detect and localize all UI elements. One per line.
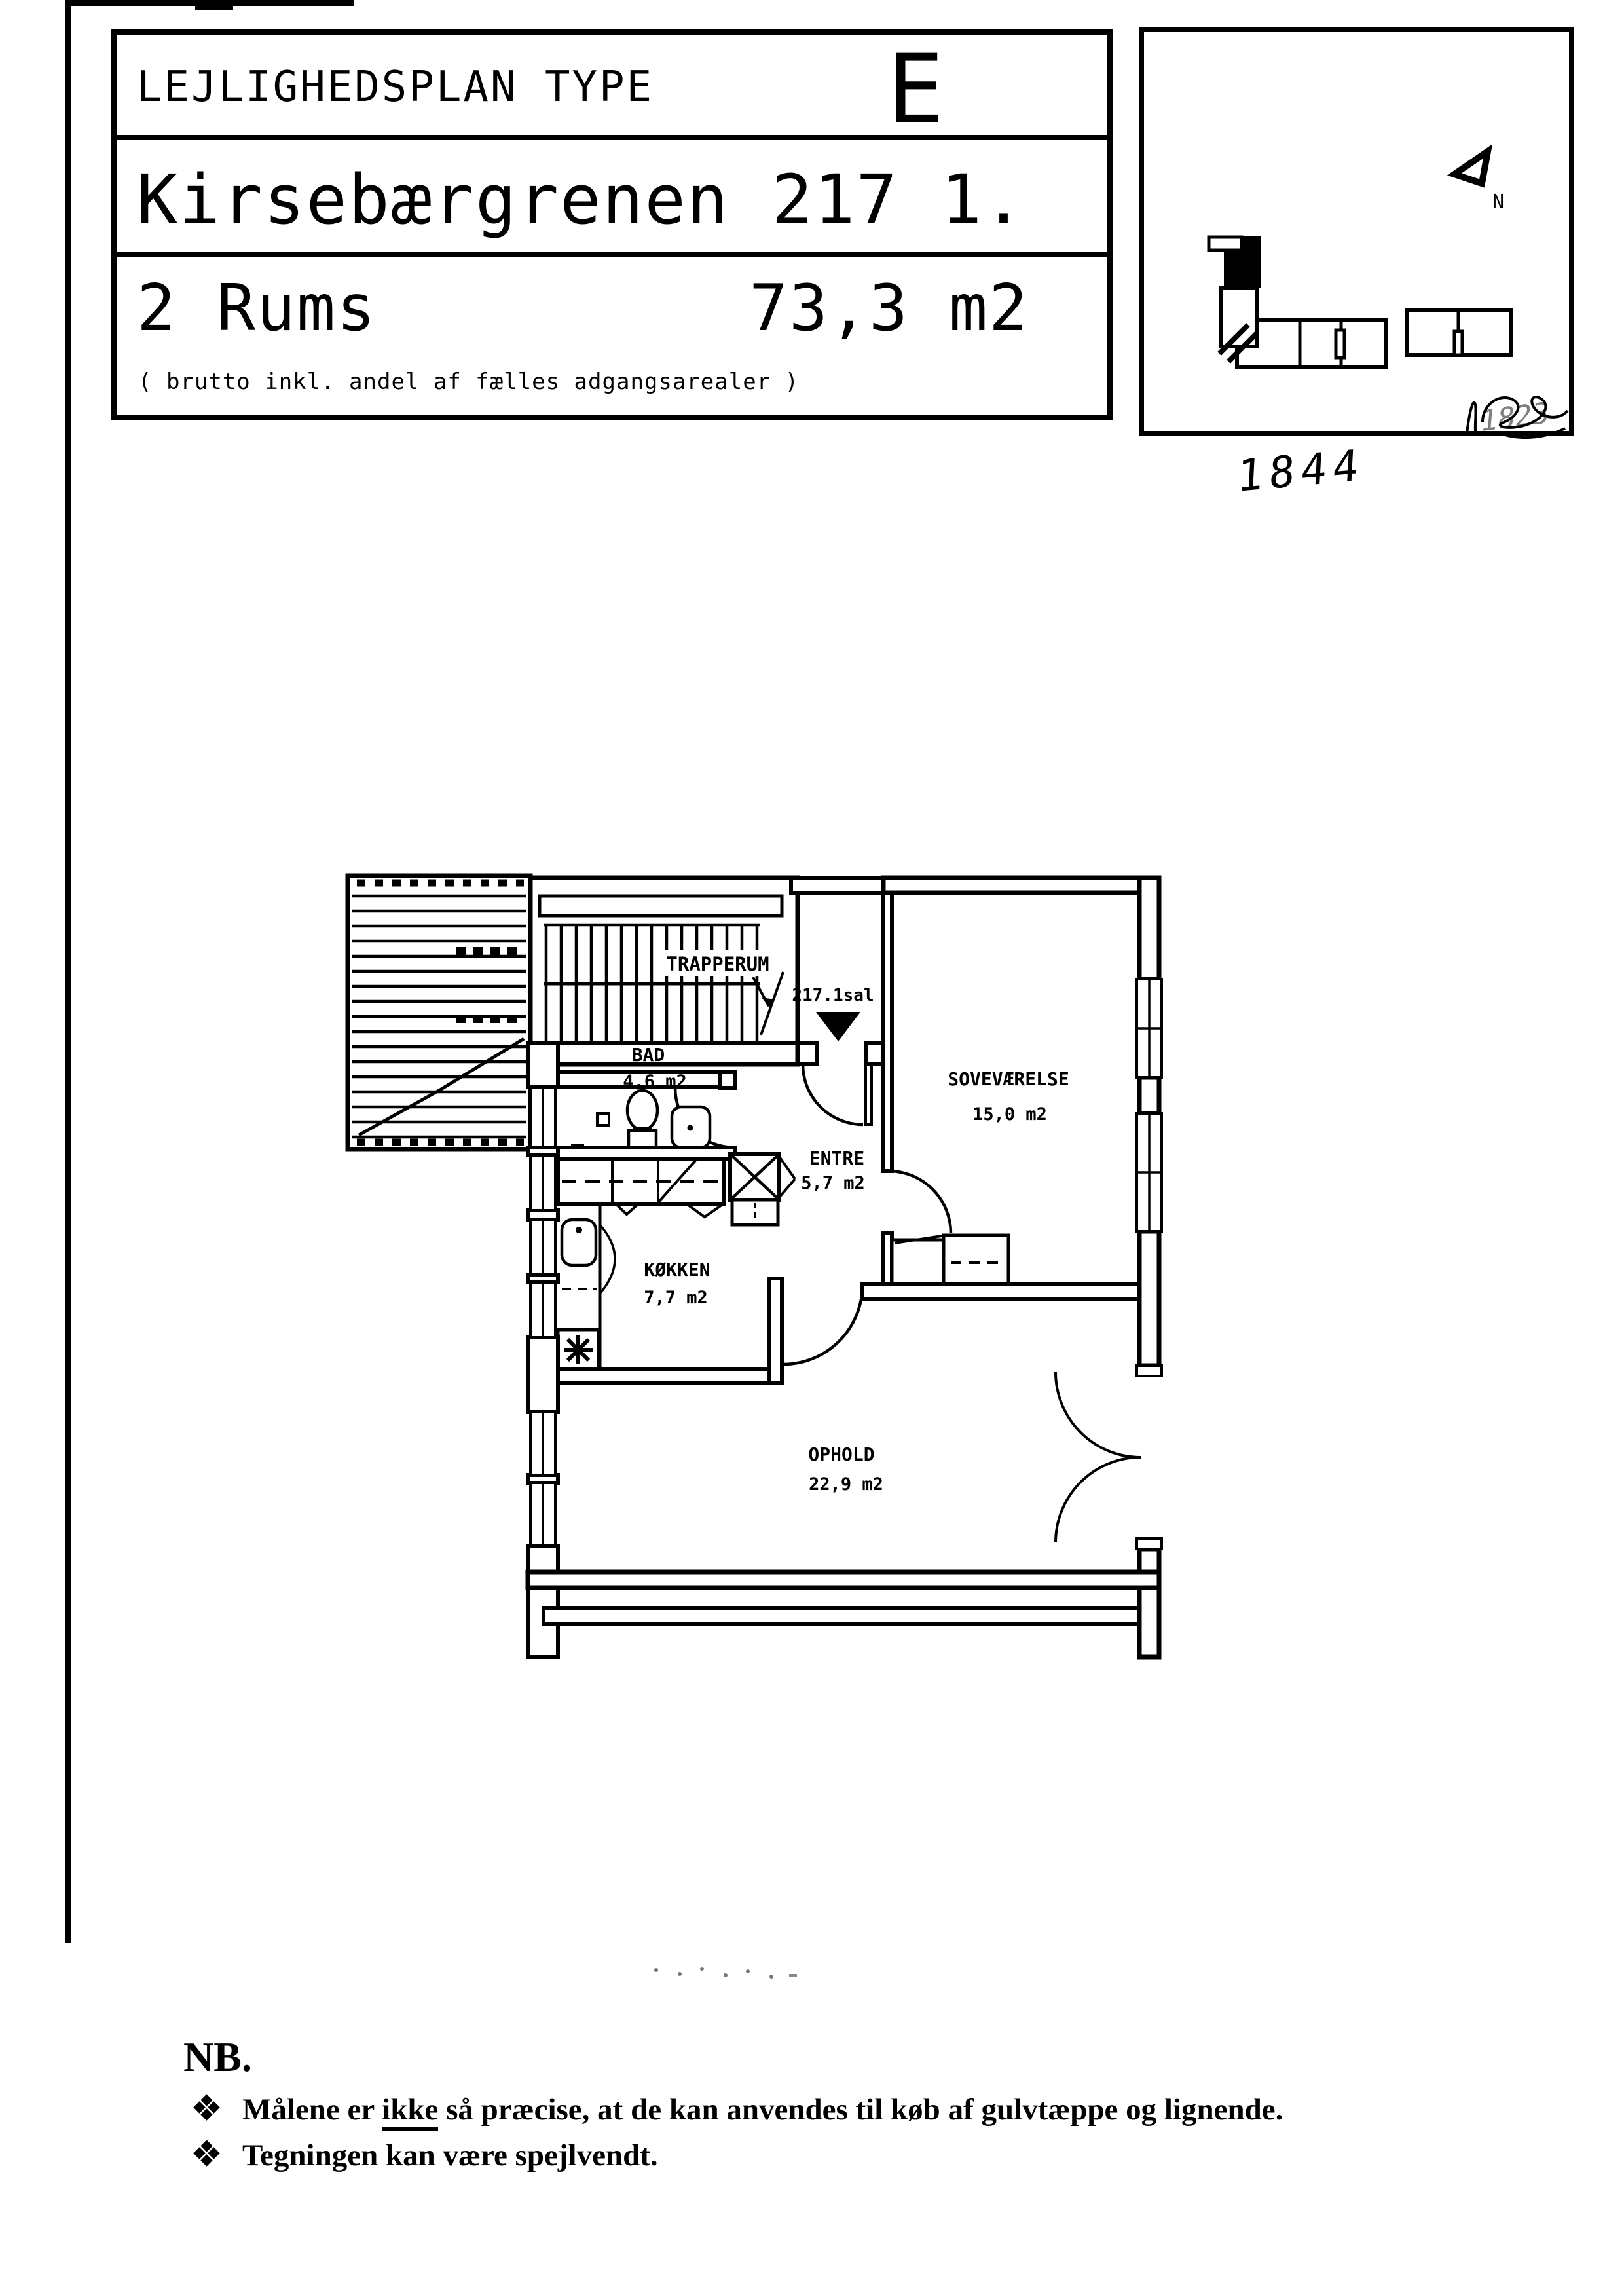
bedroom-window-icon xyxy=(1137,1113,1162,1231)
room-label-bad: BAD xyxy=(632,1044,665,1066)
note-item: Målene er ikke så præcise, at de kan anv… xyxy=(183,2092,1467,2127)
note-item: Tegningen kan være spejlvendt. xyxy=(183,2138,1467,2173)
note-text-part: Målene er xyxy=(242,2093,382,2127)
room-area-sovevaerelse: 15,0 m2 xyxy=(972,1104,1047,1125)
stairwell-label: TRAPPERUM xyxy=(666,953,769,975)
bottom-walls xyxy=(528,1572,1159,1624)
room-area-bad: 4,6 m2 xyxy=(623,1072,687,1092)
stove-burner-icon xyxy=(564,1335,593,1364)
diamond-bullet-icon xyxy=(195,2142,219,2165)
french-door-icon xyxy=(1056,1366,1162,1549)
diamond-bullet-icon xyxy=(195,2096,219,2119)
right-facade xyxy=(1056,878,1162,1657)
floor-drain-icon xyxy=(597,1113,609,1125)
site-plan-box xyxy=(1141,29,1572,438)
wardrobe-icon xyxy=(944,1235,1008,1284)
notes-section: NB. Målene er ikke så præcise, at de kan… xyxy=(183,2033,1467,2173)
entrance-marker-triangle xyxy=(816,1012,860,1041)
entrance-label: 217.1sal xyxy=(792,986,874,1005)
north-label: N xyxy=(1492,191,1504,214)
wardrobe-icon xyxy=(892,1240,944,1284)
left-facade xyxy=(528,1043,558,1657)
kitchen-sink-icon xyxy=(562,1220,596,1265)
note-text-underlined: ikke xyxy=(382,2093,438,2131)
room-area-ophold: 22,9 m2 xyxy=(809,1474,883,1495)
balcony-deck xyxy=(348,876,530,1149)
room-area-entre: 5,7 m2 xyxy=(801,1173,865,1193)
room-label-ophold: OPHOLD xyxy=(808,1444,874,1465)
scan-noise-dots xyxy=(654,1967,797,1979)
installation-shaft xyxy=(730,1154,795,1225)
floor-plan xyxy=(348,876,1162,1657)
interior-walls xyxy=(528,1278,1145,1383)
bedroom-window-icon xyxy=(1137,979,1162,1077)
page-border-marks xyxy=(65,0,354,1943)
scanned-floorplan-sheet: LEJLIGHEDSPLAN TYPE E Kirsebærgrenen 217… xyxy=(0,0,1624,2295)
room-label-sovevaerelse: SOVEVÆRELSE xyxy=(948,1068,1069,1090)
note-text: Målene er ikke så præcise, at de kan anv… xyxy=(242,2092,1283,2127)
note-text: Tegningen kan være spejlvendt. xyxy=(242,2138,658,2173)
note-text-part: så præcise, at de kan anvendes til køb a… xyxy=(438,2093,1283,2127)
room-label-koekken: KØKKEN xyxy=(644,1259,710,1280)
handwritten-year: 1844 xyxy=(1236,439,1365,502)
room-area-koekken: 7,7 m2 xyxy=(644,1288,708,1308)
room-label-entre: ENTRE xyxy=(809,1147,864,1169)
toilet-icon xyxy=(627,1091,657,1130)
notes-heading: NB. xyxy=(183,2033,1467,2081)
drawing-canvas: N 1823 1844 xyxy=(0,0,1624,2295)
